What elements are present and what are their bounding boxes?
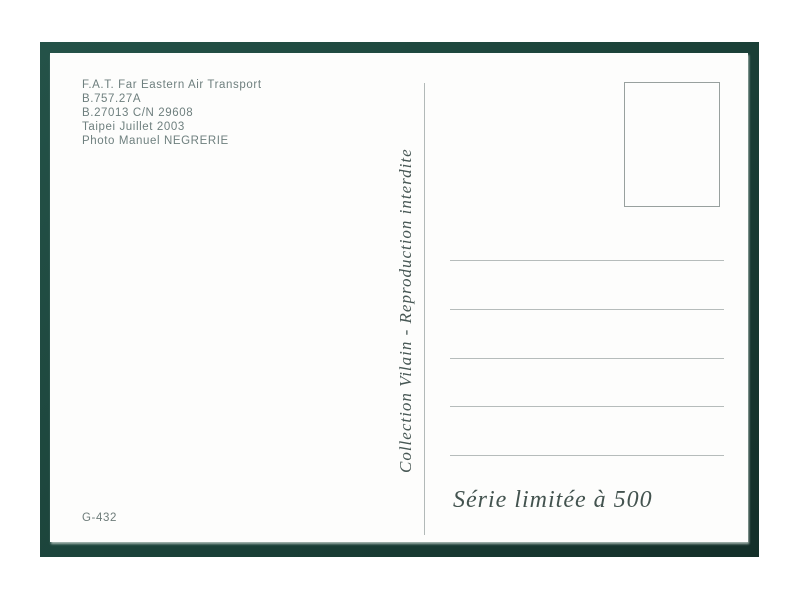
postcard-back: F.A.T. Far Eastern Air Transport B.757.2…	[50, 53, 748, 542]
photo-credit-line: Taipei Juillet 2003	[82, 120, 262, 134]
vertical-divider	[424, 83, 425, 535]
address-line	[450, 309, 724, 310]
address-line	[450, 358, 724, 359]
postcard-scan: F.A.T. Far Eastern Air Transport B.757.2…	[0, 0, 800, 600]
limited-edition-text: Série limitée à 500	[453, 487, 653, 514]
catalog-number: G-432	[82, 512, 117, 524]
photo-credit-line: B.27013 C/N 29608	[82, 106, 262, 120]
address-lines	[450, 53, 724, 542]
photo-credit-line: F.A.T. Far Eastern Air Transport	[82, 78, 262, 92]
photo-credit-line: Photo Manuel NEGRERIE	[82, 134, 262, 148]
photo-credit-line: B.757.27A	[82, 92, 262, 106]
address-line	[450, 260, 724, 261]
address-line	[450, 455, 724, 456]
photo-credit-block: F.A.T. Far Eastern Air Transport B.757.2…	[82, 78, 262, 148]
collection-vertical-text: Collection Vilain - Reproduction interdi…	[388, 88, 424, 533]
address-line	[450, 406, 724, 407]
